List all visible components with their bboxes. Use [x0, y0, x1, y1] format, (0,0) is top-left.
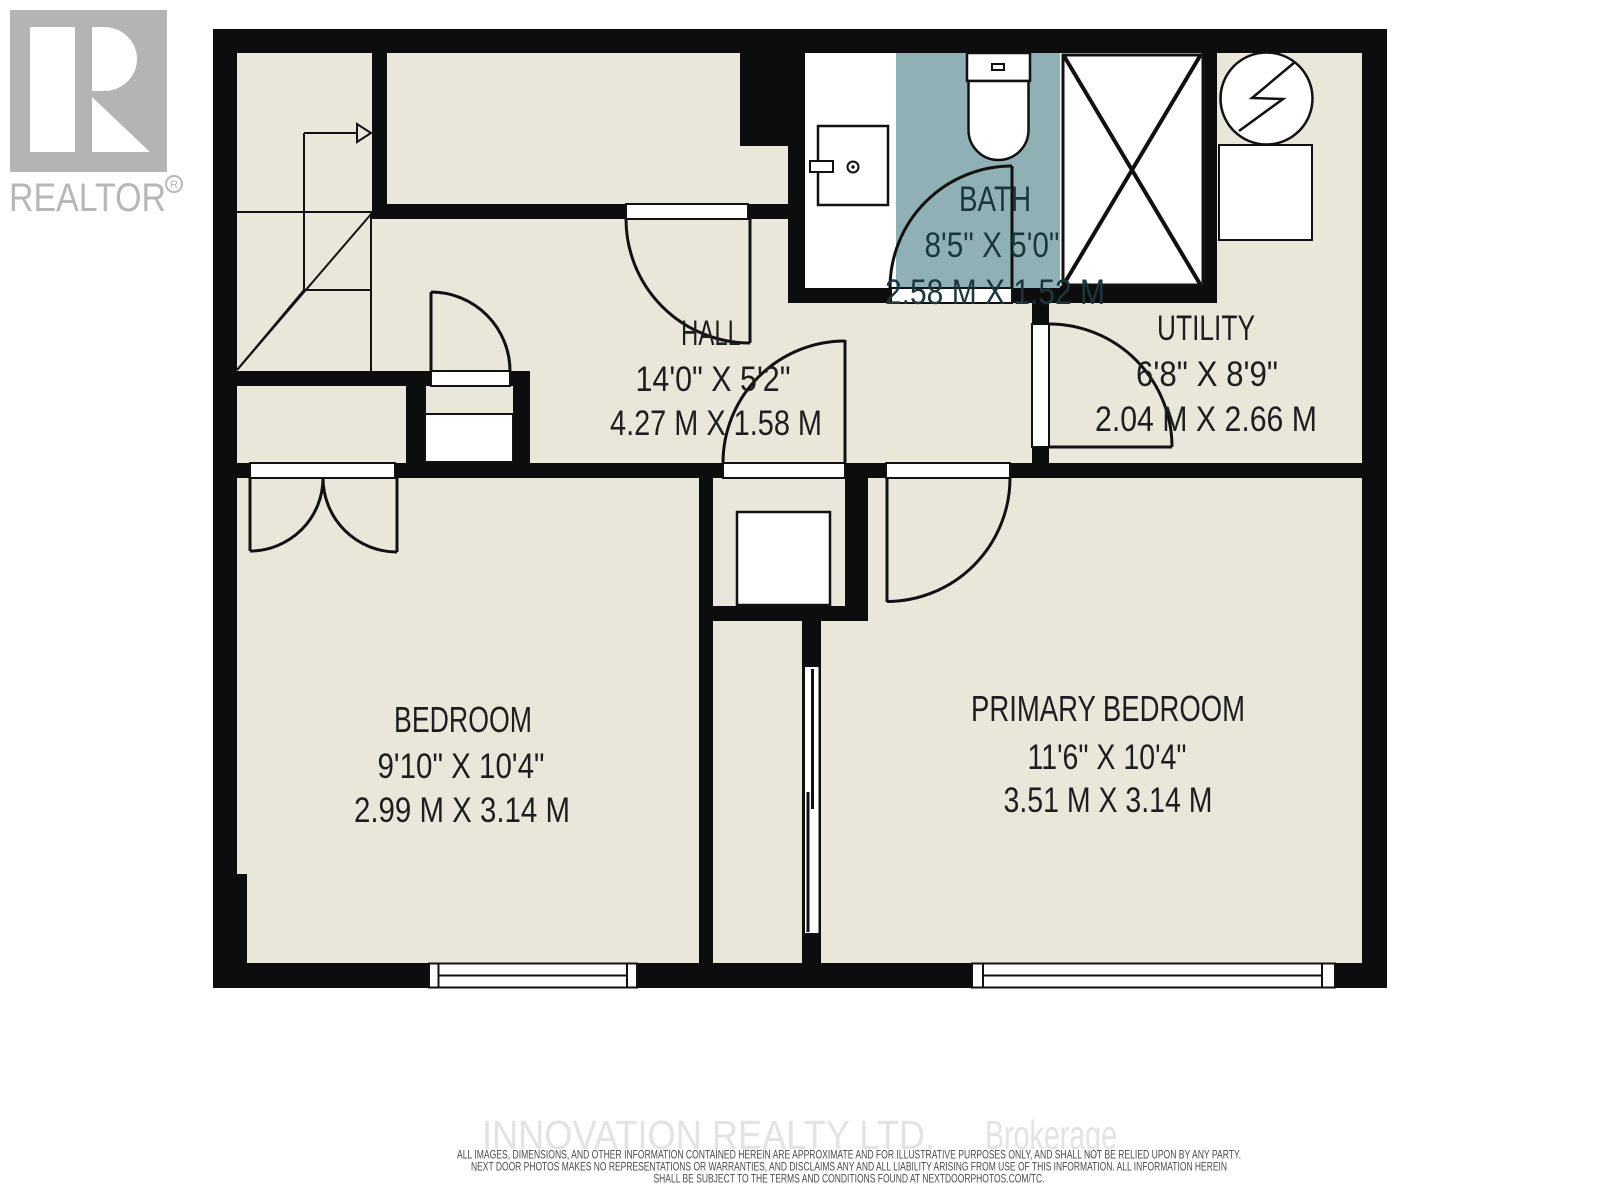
- svg-text:3.51 M X 3.14 M: 3.51 M X 3.14 M: [1004, 781, 1213, 820]
- svg-text:6'8" X 8'9": 6'8" X 8'9": [1136, 355, 1278, 394]
- svg-text:R: R: [170, 179, 178, 191]
- svg-text:11'6" X 10'4": 11'6" X 10'4": [1028, 738, 1187, 777]
- svg-text:2.99 M X 3.14 M: 2.99 M X 3.14 M: [354, 791, 570, 830]
- svg-text:UTILITY: UTILITY: [1157, 309, 1255, 348]
- svg-text:BATH: BATH: [959, 180, 1031, 219]
- svg-text:14'0" X 5'2": 14'0" X 5'2": [636, 360, 791, 399]
- svg-text:BEDROOM: BEDROOM: [394, 699, 532, 740]
- svg-text:2.04 M X 2.66 M: 2.04 M X 2.66 M: [1095, 400, 1317, 439]
- svg-text:ALL IMAGES, DIMENSIONS, AND OT: ALL IMAGES, DIMENSIONS, AND OTHER INFORM…: [457, 1150, 1241, 1162]
- svg-text:9'10" X 10'4": 9'10" X 10'4": [378, 747, 545, 786]
- svg-text:HALL: HALL: [681, 314, 741, 353]
- svg-text:4.27 M X 1.58 M: 4.27 M X 1.58 M: [610, 404, 822, 443]
- svg-text:2.58 M X 1.52 M: 2.58 M X 1.52 M: [885, 273, 1105, 312]
- svg-text:SHALL BE SUBJECT TO THE TERMS: SHALL BE SUBJECT TO THE TERMS AND CONDIT…: [654, 1174, 1045, 1186]
- svg-text:8'5" X 5'0": 8'5" X 5'0": [925, 226, 1060, 265]
- svg-text:REALTOR: REALTOR: [9, 176, 166, 220]
- svg-text:PRIMARY BEDROOM: PRIMARY BEDROOM: [971, 688, 1245, 729]
- svg-text:NEXT DOOR PHOTOS MAKES NO REPR: NEXT DOOR PHOTOS MAKES NO REPRESENTATION…: [471, 1162, 1227, 1174]
